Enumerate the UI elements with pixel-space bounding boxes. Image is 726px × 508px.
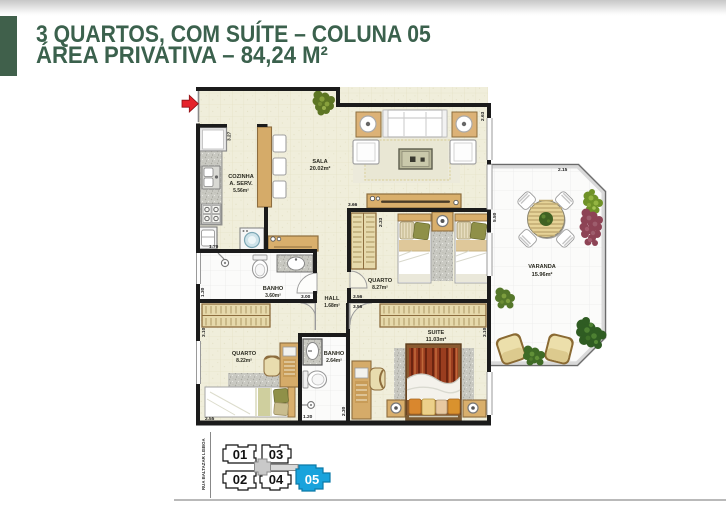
svg-text:3.66: 3.66 (348, 202, 358, 208)
svg-text:2.63: 2.63 (480, 111, 486, 121)
svg-text:3.10: 3.10 (482, 327, 488, 337)
svg-text:1.30: 1.30 (200, 287, 206, 297)
svg-text:01: 01 (233, 447, 247, 462)
svg-text:15.96m²: 15.96m² (532, 271, 553, 278)
svg-text:03: 03 (269, 447, 283, 462)
svg-text:8.27m²: 8.27m² (372, 285, 388, 291)
svg-text:20.02m²: 20.02m² (310, 165, 331, 172)
svg-text:BANHO: BANHO (263, 286, 284, 292)
svg-text:A. SERV.: A. SERV. (229, 181, 253, 187)
svg-text:VARANDA: VARANDA (528, 264, 556, 270)
svg-text:2.55: 2.55 (205, 416, 215, 422)
svg-text:3.00: 3.00 (301, 294, 311, 300)
svg-text:04: 04 (269, 472, 284, 487)
svg-text:2.33: 2.33 (378, 217, 384, 227)
svg-text:COZINHA: COZINHA (228, 174, 253, 180)
svg-text:11.03m²: 11.03m² (426, 336, 447, 343)
svg-text:3.10: 3.10 (201, 327, 207, 337)
svg-text:1.68m²: 1.68m² (324, 303, 340, 309)
svg-text:2.30: 2.30 (341, 406, 347, 416)
svg-text:3.56: 3.56 (353, 304, 363, 310)
svg-text:5.56m²: 5.56m² (233, 188, 249, 194)
svg-text:RUA BALTAZAR LISBOA: RUA BALTAZAR LISBOA (201, 438, 206, 490)
svg-text:SALA: SALA (312, 159, 327, 165)
svg-text:3.60m²: 3.60m² (265, 293, 281, 299)
svg-text:3.27: 3.27 (227, 131, 233, 141)
svg-text:SUITE: SUITE (428, 330, 445, 336)
svg-text:02: 02 (233, 472, 247, 487)
svg-text:2.15: 2.15 (558, 167, 568, 173)
svg-text:05: 05 (305, 472, 319, 487)
svg-text:8.22m²: 8.22m² (236, 358, 252, 364)
svg-text:QUARTO: QUARTO (368, 278, 393, 284)
svg-text:3.56: 3.56 (353, 294, 363, 300)
svg-text:1.70: 1.70 (209, 244, 219, 250)
svg-text:BANHO: BANHO (324, 351, 345, 357)
svg-text:2.64m²: 2.64m² (326, 358, 342, 364)
svg-text:HALL: HALL (325, 296, 340, 302)
svg-text:QUARTO: QUARTO (232, 351, 257, 357)
svg-text:5.50: 5.50 (492, 212, 498, 222)
svg-text:1.20: 1.20 (303, 414, 313, 420)
